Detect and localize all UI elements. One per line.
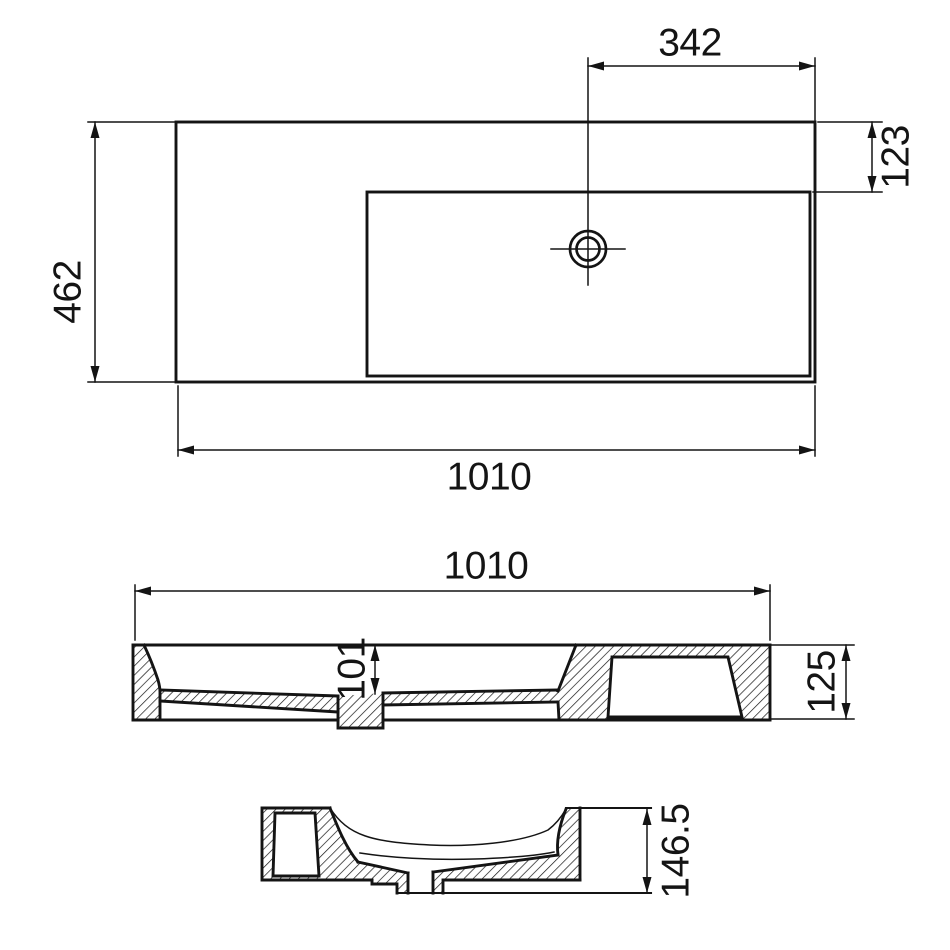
floor-right-hatch-2: [433, 855, 564, 893]
dim-label-deck-depth: 123: [875, 125, 918, 189]
dim-basin-inner-depth: 101: [331, 637, 380, 701]
dim-label-overall-width-plan: 1010: [447, 456, 532, 499]
dim-faucet-offset: 342: [588, 22, 815, 121]
technical-drawing-canvas: 342 123 462 1010: [0, 0, 950, 950]
dim-label-overall-height: 146.5: [655, 803, 698, 898]
dim-label-overall-depth: 462: [47, 260, 90, 324]
cross-section-view: 146.5: [262, 803, 698, 898]
left-wall-hatch: [133, 645, 160, 720]
back-wall-hatch: [262, 808, 358, 880]
dim-label-basin-inner-depth: 101: [331, 637, 374, 701]
dim-label-faucet-offset: 342: [658, 22, 722, 65]
drawing-page: 342 123 462 1010: [0, 0, 950, 950]
plan-view: 342 123 462 1010: [47, 22, 918, 499]
dim-overall-height: 146.5: [643, 803, 698, 898]
long-section-view: 1010 101 125: [133, 545, 854, 729]
dim-overall-width-plan: 1010: [178, 386, 815, 499]
dim-overall-depth: 462: [47, 122, 177, 382]
mounting-cavity-outline: [608, 657, 742, 717]
dim-body-height: 125: [772, 645, 854, 719]
basin-body-outline: [176, 122, 815, 382]
dim-label-body-height: 125: [801, 650, 844, 714]
mounting-cavity-outline-2: [273, 813, 319, 876]
dim-label-overall-width-section: 1010: [444, 545, 529, 588]
dim-overall-width-section: 1010: [135, 545, 770, 641]
basin-far-rim-line: [330, 808, 566, 845]
dim-deck-depth: 123: [813, 122, 918, 192]
